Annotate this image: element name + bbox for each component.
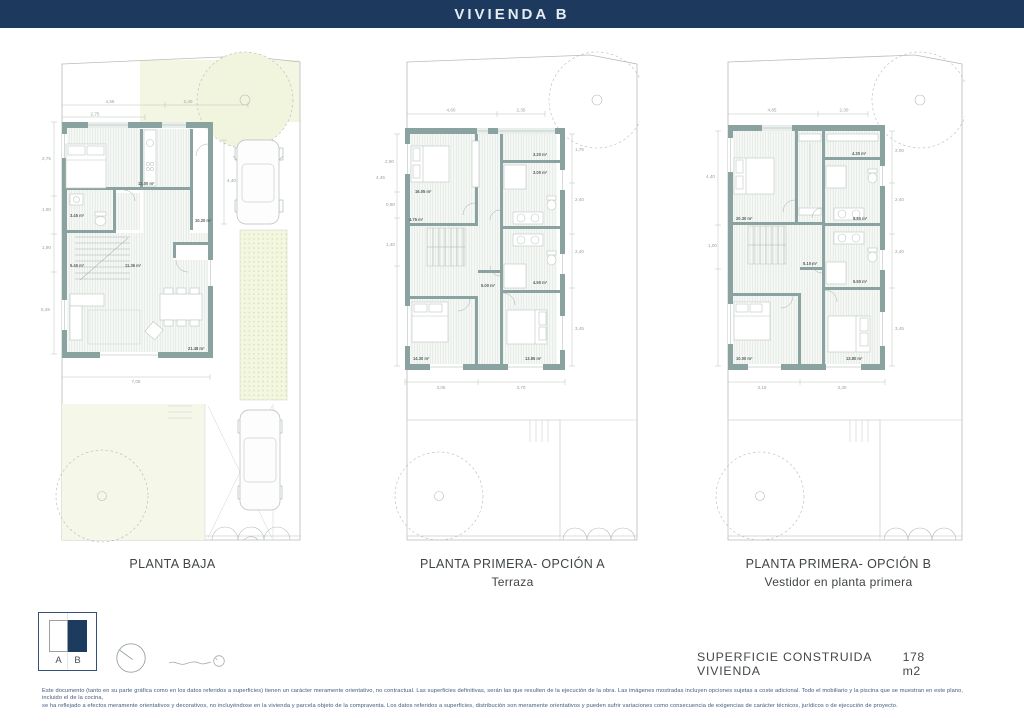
floor-plan-planta-baja: 4,55 2,40 2,75 2,75 1,90 1,90 5,45 4,40 …	[40, 48, 305, 553]
plants-icon	[850, 420, 956, 540]
dim-label: 4,85	[768, 108, 777, 113]
room-area-label: 21.48 m²	[188, 346, 205, 351]
plan-title-opcion-a: PLANTA PRIMERA- OPCIÓN A	[380, 557, 645, 571]
dim-label: 2,40	[895, 249, 904, 254]
plants-icon	[530, 420, 635, 540]
dim-label: 4,55	[106, 99, 115, 104]
option-a-label: A	[49, 655, 68, 666]
room-area-label: 13.85 m²	[525, 356, 542, 361]
room-area-label: 16.05 m²	[415, 189, 432, 194]
dim-label: 2,30	[840, 108, 849, 113]
option-b-label: B	[68, 655, 87, 666]
dim-label: 3,45	[895, 326, 904, 331]
car-icon	[238, 410, 282, 510]
legal-disclaimer: Este documento (tanto en su parte gráfic…	[42, 688, 982, 710]
surface-summary-value: 178 m2	[903, 650, 940, 678]
dim-label: 3,70	[517, 385, 526, 390]
room-area-label: 5.50 m²	[853, 216, 868, 221]
legal-disclaimer-line1: Este documento (tanto en su parte gráfic…	[42, 688, 982, 703]
dim-label: 2,40	[575, 249, 584, 254]
dim-label: 4,45	[376, 175, 385, 180]
compass-icon	[114, 641, 148, 675]
dim-label: 5,45	[41, 307, 50, 312]
room-area-label: 3.45 m²	[70, 213, 85, 218]
dim-label: 4,60	[447, 108, 456, 113]
plan-subtitle-opcion-a: Terraza	[380, 575, 645, 589]
room-area-label: 4.75 m²	[409, 217, 424, 222]
room-area-label: 11.36 m²	[125, 263, 142, 268]
room-area-label: 10.00 m²	[736, 356, 753, 361]
plan-title-planta-baja: PLANTA BAJA	[40, 557, 305, 571]
room-area-label: 10.20 m²	[195, 218, 212, 223]
room-area-label: 5.00 m²	[481, 283, 496, 288]
dim-label: 2,40	[575, 197, 584, 202]
dim-label: 2,90	[385, 159, 394, 164]
dim-label: 4,40	[227, 178, 236, 183]
dim-label: 2,40	[184, 99, 193, 104]
room-area-label: 13.80 m²	[846, 356, 863, 361]
page-title: VIVIENDA B	[454, 6, 569, 23]
room-area-label: 5.50 m²	[853, 279, 868, 284]
option-b-swatch	[68, 620, 87, 652]
room-area-label: 12.00 m²	[138, 181, 155, 186]
room-area-label: 4.30 m²	[852, 151, 867, 156]
dim-label: 3,30	[838, 385, 847, 390]
dim-label: 7,05	[132, 379, 141, 384]
car-icon	[233, 140, 283, 224]
scale-indicator-icon	[167, 653, 227, 669]
legal-disclaimer-line2: se ha reflejado a efectos meramente orie…	[42, 703, 982, 710]
floor-plan-opcion-b: 4,85 2,30 4,40 1,00 2,00 2,40 2,40 3,45 …	[700, 48, 965, 553]
room-area-label: 20.30 m²	[736, 216, 753, 221]
dim-label: 1,90	[42, 245, 51, 250]
option-legend: A B	[38, 612, 97, 671]
room-area-label: 4.50 m²	[533, 280, 548, 285]
dim-label: 3,05	[437, 385, 446, 390]
dim-label: 2,40	[895, 197, 904, 202]
room-area-label: 3.20 m²	[533, 152, 548, 157]
room-area-label: 5.40 m²	[70, 263, 85, 268]
surface-summary-label: SUPERFICIE CONSTRUIDA VIVIENDA	[697, 650, 903, 678]
room-area-label: 5.10 m²	[803, 261, 818, 266]
dim-label: 2,75	[42, 156, 51, 161]
dim-label: 2,35	[517, 108, 526, 113]
dim-label: 2,75	[91, 112, 100, 117]
room-area-label: 14.30 m²	[413, 356, 430, 361]
title-bar: VIVIENDA B	[0, 0, 1024, 28]
dim-label: 1,40	[386, 242, 395, 247]
dim-label: 4,40	[706, 174, 715, 179]
dim-label: 1,00	[708, 243, 717, 248]
dim-label: 0,90	[386, 202, 395, 207]
dim-label: 2,00	[895, 148, 904, 153]
plan-subtitle-opcion-b: Vestidor en planta primera	[706, 575, 971, 589]
dim-label: 1,75	[575, 147, 584, 152]
plan-title-opcion-b: PLANTA PRIMERA- OPCIÓN B	[706, 557, 971, 571]
dim-label: 3,45	[575, 326, 584, 331]
floor-plan-opcion-a: 4,60 2,35 2,90 4,45 0,90 1,40 1,75 2,40 …	[375, 48, 640, 553]
surface-summary: SUPERFICIE CONSTRUIDA VIVIENDA 178 m2	[697, 650, 940, 678]
room-area-label: 3.00 m²	[533, 170, 548, 175]
dim-label: 1,90	[42, 207, 51, 212]
dim-label: 3,15	[758, 385, 767, 390]
option-a-swatch	[49, 620, 68, 652]
